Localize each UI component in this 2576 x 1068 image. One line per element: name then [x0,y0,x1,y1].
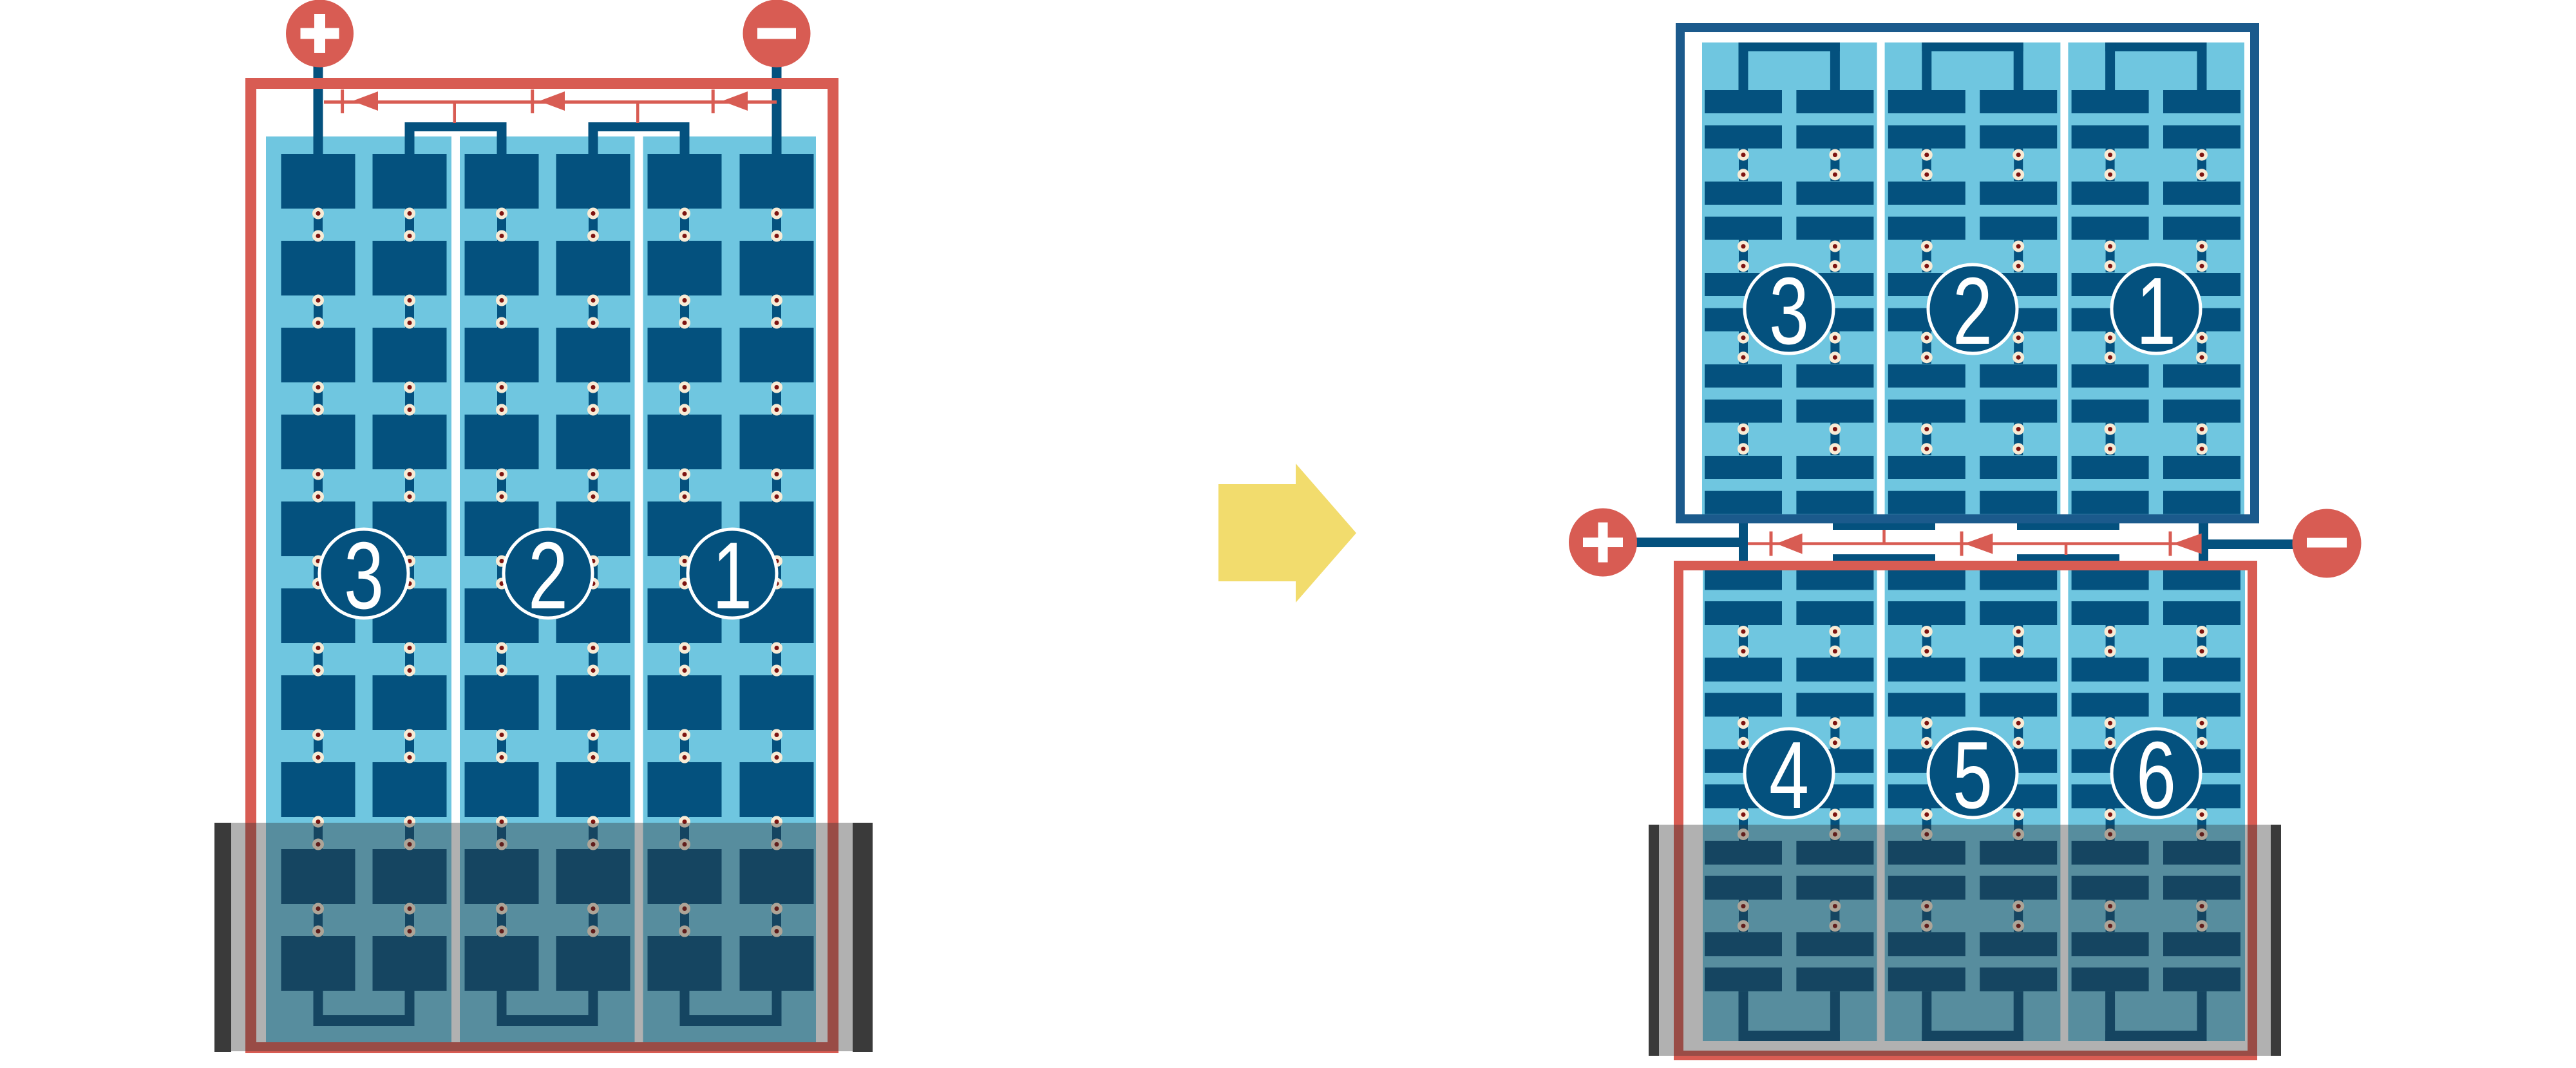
svg-text:2: 2 [528,523,568,629]
svg-text:3: 3 [344,523,384,629]
svg-text:1: 1 [2136,258,2176,364]
svg-text:1: 1 [712,523,752,629]
svg-text:5: 5 [1953,722,1993,829]
svg-text:2: 2 [1953,258,1993,364]
svg-text:3: 3 [1769,258,1809,364]
svg-text:6: 6 [2136,722,2176,829]
svg-text:4: 4 [1769,722,1809,829]
